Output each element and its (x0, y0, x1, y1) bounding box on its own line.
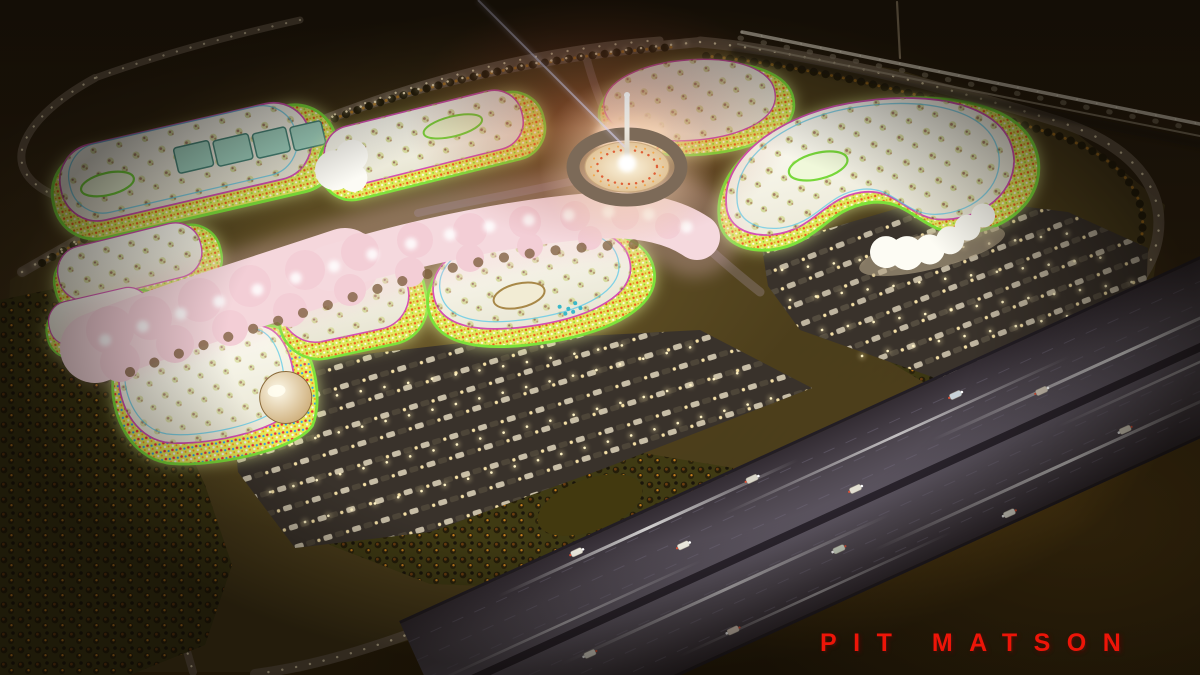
watermark: PIT MATSON PIT MATSON (820, 629, 1139, 659)
vignette-overlay (0, 0, 1200, 675)
rendering-canvas: PIT MATSON PIT MATSON (0, 0, 1200, 675)
watermark-text: PIT MATSON (820, 629, 1137, 657)
